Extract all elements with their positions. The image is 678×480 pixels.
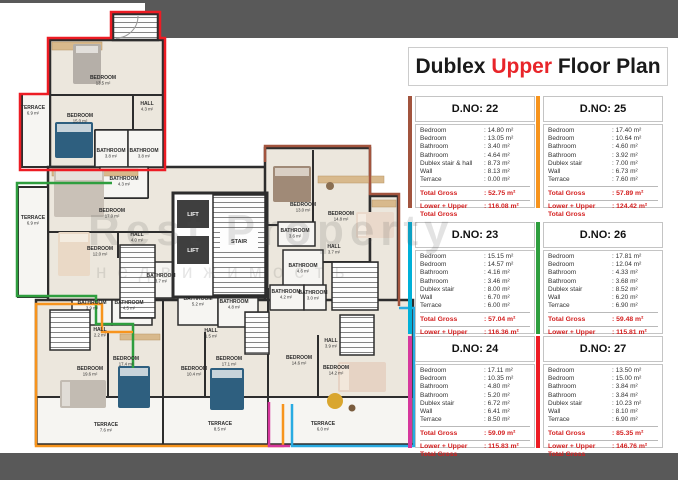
card-row: Bathroom: 4.64 m² <box>420 152 530 160</box>
room-type-label: Bedroom <box>548 375 612 383</box>
room-area: 4.3 m² <box>141 107 154 112</box>
room-area: 4.8 m² <box>228 305 241 310</box>
room-area-value: : 6.90 m² <box>612 416 658 424</box>
room-area-value: : 12.04 m² <box>612 261 658 269</box>
room-type-label: Bedroom <box>548 135 612 143</box>
card-row: Bathroom: 3.92 m² <box>548 152 658 160</box>
card-header: D.NO: 23 <box>415 222 535 248</box>
total-gross-value: : 59.48 m² <box>612 316 658 324</box>
room-area-value: : 6.70 m² <box>484 294 530 302</box>
lower-upper-label: Lower + Upper Total Gross <box>420 443 484 459</box>
total-gross-label: Total Gross <box>420 316 484 324</box>
room-type-label: Terrace <box>548 176 612 184</box>
card-row: Bedroom: 17.81 m² <box>548 253 658 261</box>
room-area-value: : 4.60 m² <box>612 143 658 151</box>
room-area: 19.6 m² <box>83 372 98 377</box>
total-gross-row: Total Gross: 59.48 m² <box>548 312 658 324</box>
room-area-value: : 4.16 m² <box>484 269 530 277</box>
room-area-value: : 6.41 m² <box>484 408 530 416</box>
room-area: 4.2 m² <box>280 295 293 300</box>
room-area-value: : 5.20 m² <box>484 392 530 400</box>
card-accent-bar <box>408 96 412 208</box>
card-row: Bedroom: 14.57 m² <box>420 261 530 269</box>
room-area: 6.0 m² <box>317 427 330 432</box>
card-row: Dublex stair: 8.52 m² <box>548 286 658 294</box>
room-type-label: Dublex stair <box>420 286 484 294</box>
room-area-value: : 6.20 m² <box>612 294 658 302</box>
room-area-value: : 3.46 m² <box>484 278 530 286</box>
room-type-label: Wall <box>420 168 484 176</box>
room-type-label: Dublex stair <box>548 160 612 168</box>
room-type-label: Bedroom <box>420 367 484 375</box>
room-type-label: Bedroom <box>548 367 612 375</box>
room-area: 15.0 m² <box>73 119 88 124</box>
room-type-label: Bedroom <box>548 261 612 269</box>
total-gross-value: : 85.35 m² <box>612 430 658 438</box>
card-row: Bathroom: 3.84 m² <box>548 392 658 400</box>
card-header: D.NO: 24 <box>415 336 535 362</box>
room-type-label: Bedroom <box>548 253 612 261</box>
card-row: Dublex stair & hall: 8.73 m² <box>420 160 530 168</box>
room-area: 13.5 m² <box>96 81 111 86</box>
room-area-value: : 7.60 m² <box>612 176 658 184</box>
card-body: Bedroom: 14.80 m²Bedroom: 13.05 m²Bathro… <box>415 124 535 208</box>
room-type-label: Bathroom <box>420 383 484 391</box>
room-area-value: : 17.40 m² <box>612 127 658 135</box>
card-row: Bedroom: 17.11 m² <box>420 367 530 375</box>
svg-text:HALL3.7 m²: HALL3.7 m² <box>327 244 340 255</box>
svg-text:HALL1.5 m²: HALL1.5 m² <box>204 328 217 339</box>
room-area: 3.8 m² <box>138 154 151 159</box>
unit-card-26: D.NO: 26 Bedroom: 17.81 m²Bedroom: 12.04… <box>536 222 663 334</box>
room-type-label: Bathroom <box>420 269 484 277</box>
total-gross-label: Total Gross <box>420 430 484 438</box>
room-type-label: Bathroom <box>548 278 612 286</box>
room-area-value: : 14.80 m² <box>484 127 530 135</box>
card-row: Wall: 6.73 m² <box>548 168 658 176</box>
lower-upper-value: : 146.76 m² <box>612 443 658 459</box>
card-row: Dublex stair: 6.72 m² <box>420 400 530 408</box>
room-area: 1.5 m² <box>205 334 218 339</box>
room-area: 17.4 m² <box>119 362 134 367</box>
card-body: Bedroom: 17.81 m²Bedroom: 12.04 m²Bathro… <box>543 250 663 334</box>
room-area-value: : 8.50 m² <box>484 416 530 424</box>
svg-text:HALL4.0 m²: HALL4.0 m² <box>130 232 143 243</box>
card-row: Bedroom: 13.50 m² <box>548 367 658 375</box>
room-area-value: : 13.50 m² <box>612 367 658 375</box>
card-row: Bathroom: 4.60 m² <box>548 143 658 151</box>
card-accent-bar <box>536 96 540 208</box>
room-type-label: Wall <box>548 168 612 176</box>
room-area-value: : 10.23 m² <box>612 400 658 408</box>
room-area: 3.7 m² <box>155 279 168 284</box>
room-area-value: : 10.35 m² <box>484 375 530 383</box>
card-row: Bathroom: 4.80 m² <box>420 383 530 391</box>
card-row: Terrace: 6.00 m² <box>420 302 530 310</box>
card-body: Bedroom: 13.50 m²Bedroom: 15.00 m²Bathro… <box>543 364 663 448</box>
room-area-value: : 17.81 m² <box>612 253 658 261</box>
room-area: 14.8 m² <box>334 217 349 222</box>
total-gross-label: Total Gross <box>548 316 612 324</box>
total-gross-row: Total Gross: 52.75 m² <box>420 186 530 198</box>
room-type-label: Wall <box>548 294 612 302</box>
card-row: Bedroom: 17.40 m² <box>548 127 658 135</box>
room-area-value: : 6.00 m² <box>484 302 530 310</box>
room-area: 3.9 m² <box>86 306 99 311</box>
room-area-value: : 8.00 m² <box>484 286 530 294</box>
lower-upper-label: Lower + Upper Total Gross <box>548 443 612 459</box>
card-row: Bedroom: 15.00 m² <box>548 375 658 383</box>
card-row: Bedroom: 13.05 m² <box>420 135 530 143</box>
card-row: Bedroom: 12.04 m² <box>548 261 658 269</box>
room-area-value: : 8.52 m² <box>612 286 658 294</box>
room-area-value: : 4.64 m² <box>484 152 530 160</box>
room-type-label: Bathroom <box>548 269 612 277</box>
room-area: 10.4 m² <box>187 372 202 377</box>
room-type-label: Bedroom <box>420 135 484 143</box>
room-area-value: : 3.68 m² <box>612 278 658 286</box>
total-gross-label: Total Gross <box>548 430 612 438</box>
room-area: 3.0 m² <box>307 296 320 301</box>
room-area-value: : 15.00 m² <box>612 375 658 383</box>
total-gross-value: : 57.04 m² <box>484 316 530 324</box>
lower-upper-row: Lower + Upper Total Gross: 115.83 m² <box>420 440 530 460</box>
svg-text:HALL2.2 m²: HALL2.2 m² <box>93 327 106 338</box>
total-gross-value: : 52.75 m² <box>484 190 530 198</box>
floor-plan-svg: LIFT LIFT STAIR <box>0 0 420 460</box>
room-type-label: Bedroom <box>420 261 484 269</box>
room-area-value: : 8.73 m² <box>484 160 530 168</box>
room-area: 14.2 m² <box>329 371 344 376</box>
lower-upper-value: : 116.08 m² <box>484 203 530 219</box>
unit-card-27: D.NO: 27 Bedroom: 13.50 m²Bedroom: 15.00… <box>536 336 663 448</box>
unit-card-22: D.NO: 22 Bedroom: 14.80 m²Bedroom: 13.05… <box>408 96 535 208</box>
card-row: Wall: 8.13 m² <box>420 168 530 176</box>
room-type-label: Bathroom <box>420 143 484 151</box>
lower-upper-value: : 124.42 m² <box>612 203 658 219</box>
title-part2: Floor Plan <box>552 55 661 79</box>
lower-upper-row: Lower + Upper Total Gross: 146.76 m² <box>548 440 658 460</box>
title-highlight: Upper <box>491 55 552 79</box>
card-header: D.NO: 27 <box>543 336 663 362</box>
room-area-value: : 6.73 m² <box>612 168 658 176</box>
room-area-value: : 15.15 m² <box>484 253 530 261</box>
room-area-value: : 17.11 m² <box>484 367 530 375</box>
total-gross-row: Total Gross: 57.89 m² <box>548 186 658 198</box>
room-area-value: : 13.05 m² <box>484 135 530 143</box>
page: LIFT LIFT STAIR <box>0 0 678 480</box>
room-area: 14.6 m² <box>292 361 307 366</box>
room-area-value: : 6.72 m² <box>484 400 530 408</box>
room-area-value: : 6.90 m² <box>612 302 658 310</box>
room-area-value: : 14.57 m² <box>484 261 530 269</box>
lower-upper-value: : 115.83 m² <box>484 443 530 459</box>
card-row: Dublex stair: 10.23 m² <box>548 400 658 408</box>
card-accent-bar <box>536 222 540 334</box>
room-type-label: Dublex stair & hall <box>420 160 484 168</box>
stair-label: STAIR <box>231 239 247 245</box>
room-type-label: Bathroom <box>420 392 484 400</box>
room-area: 6.9 m² <box>27 221 40 226</box>
lower-upper-label: Lower + Upper Total Gross <box>548 203 612 219</box>
lower-upper-row: Lower + Upper Total Gross: 124.42 m² <box>548 200 658 220</box>
room-area: 4.5 m² <box>123 306 136 311</box>
room-type-label: Bedroom <box>420 375 484 383</box>
room-area-value: : 10.64 m² <box>612 135 658 143</box>
unit-card-24: D.NO: 24 Bedroom: 17.11 m²Bedroom: 10.35… <box>408 336 535 448</box>
total-gross-row: Total Gross: 85.35 m² <box>548 426 658 438</box>
room-area-value: : 3.84 m² <box>612 392 658 400</box>
card-row: Wall: 6.20 m² <box>548 294 658 302</box>
card-row: Bedroom: 10.35 m² <box>420 375 530 383</box>
room-area-value: : 3.92 m² <box>612 152 658 160</box>
card-body: Bedroom: 17.40 m²Bedroom: 10.64 m²Bathro… <box>543 124 663 208</box>
lift-label: LIFT <box>187 212 199 218</box>
room-area: 4.3 m² <box>118 182 131 187</box>
room-type-label: Bedroom <box>548 127 612 135</box>
room-area: 12.0 m² <box>93 252 108 257</box>
room-type-label: Bedroom <box>420 127 484 135</box>
total-gross-row: Total Gross: 57.04 m² <box>420 312 530 324</box>
room-area: 17.0 m² <box>105 214 120 219</box>
room-type-label: Bedroom <box>420 253 484 261</box>
card-row: Bathroom: 4.33 m² <box>548 269 658 277</box>
card-row: Dublex stair: 8.00 m² <box>420 286 530 294</box>
room-type-label: Terrace <box>420 302 484 310</box>
room-area-value: : 0.00 m² <box>484 176 530 184</box>
room-type-label: Wall <box>420 294 484 302</box>
card-body: Bedroom: 17.11 m²Bedroom: 10.35 m²Bathro… <box>415 364 535 448</box>
room-type-label: Dublex stair <box>420 400 484 408</box>
card-accent-bar <box>408 336 412 448</box>
title-part1: Dublex <box>415 55 491 79</box>
room-type-label: Bathroom <box>420 152 484 160</box>
room-area: 6.9 m² <box>27 111 40 116</box>
total-gross-row: Total Gross: 59.09 m² <box>420 426 530 438</box>
unit-card-23: D.NO: 23 Bedroom: 15.15 m²Bedroom: 14.57… <box>408 222 535 334</box>
room-type-label: Wall <box>420 408 484 416</box>
room-type-label: Terrace <box>548 416 612 424</box>
total-gross-value: : 57.89 m² <box>612 190 658 198</box>
room-area: 7.6 m² <box>100 428 113 433</box>
room-area-value: : 4.33 m² <box>612 269 658 277</box>
card-header: D.NO: 26 <box>543 222 663 248</box>
lower-upper-label: Lower + Upper Total Gross <box>420 203 484 219</box>
unit-card-25: D.NO: 25 Bedroom: 17.40 m²Bedroom: 10.64… <box>536 96 663 208</box>
room-type-label: Bathroom <box>548 392 612 400</box>
room-type-label: Bathroom <box>548 152 612 160</box>
room-type-label: Bathroom <box>420 278 484 286</box>
room-area: 2.2 m² <box>94 333 107 338</box>
card-accent-bar <box>536 336 540 448</box>
lower-upper-row: Lower + Upper Total Gross: 116.08 m² <box>420 200 530 220</box>
card-row: Bathroom: 3.46 m² <box>420 278 530 286</box>
card-row: Terrace: 0.00 m² <box>420 176 530 184</box>
room-area: 3.9 m² <box>325 344 338 349</box>
room-type-label: Wall <box>548 408 612 416</box>
card-row: Bathroom: 3.40 m² <box>420 143 530 151</box>
room-area: 4.6 m² <box>297 269 310 274</box>
card-row: Bedroom: 10.64 m² <box>548 135 658 143</box>
svg-text:HALL4.3 m²: HALL4.3 m² <box>140 101 153 112</box>
card-row: Wall: 6.41 m² <box>420 408 530 416</box>
card-row: Bedroom: 15.15 m² <box>420 253 530 261</box>
card-row: Terrace: 6.90 m² <box>548 416 658 424</box>
card-header: D.NO: 22 <box>415 96 535 122</box>
room-type-label: Terrace <box>548 302 612 310</box>
card-row: Terrace: 6.90 m² <box>548 302 658 310</box>
card-header: D.NO: 25 <box>543 96 663 122</box>
room-area: 4.0 m² <box>131 238 144 243</box>
room-area-value: : 8.13 m² <box>484 168 530 176</box>
svg-text:HALL3.9 m²: HALL3.9 m² <box>324 338 337 349</box>
room-area-value: : 3.40 m² <box>484 143 530 151</box>
card-row: Bathroom: 3.84 m² <box>548 383 658 391</box>
card-row: Wall: 8.10 m² <box>548 408 658 416</box>
room-type-label: Bathroom <box>548 383 612 391</box>
room-area: 17.1 m² <box>222 362 237 367</box>
card-row: Bedroom: 14.80 m² <box>420 127 530 135</box>
room-area: 13.0 m² <box>296 208 311 213</box>
card-row: Wall: 6.70 m² <box>420 294 530 302</box>
room-type-label: Bathroom <box>548 143 612 151</box>
card-row: Bathroom: 5.20 m² <box>420 392 530 400</box>
card-accent-bar <box>408 222 412 334</box>
room-area-value: : 8.10 m² <box>612 408 658 416</box>
total-gross-label: Total Gross <box>420 190 484 198</box>
card-row: Terrace: 7.60 m² <box>548 176 658 184</box>
room-area: 3.8 m² <box>105 154 118 159</box>
room-type-label: Dublex stair <box>548 286 612 294</box>
room-area: 3.7 m² <box>328 250 341 255</box>
room-area-value: : 3.84 m² <box>612 383 658 391</box>
room-area: 3.6 m² <box>289 234 302 239</box>
room-area-value: : 4.80 m² <box>484 383 530 391</box>
room-type-label: Terrace <box>420 416 484 424</box>
room-area: 5.2 m² <box>192 302 205 307</box>
page-title: Dublex Upper Floor Plan <box>408 47 668 86</box>
card-row: Dublex stair: 7.00 m² <box>548 160 658 168</box>
card-body: Bedroom: 15.15 m²Bedroom: 14.57 m²Bathro… <box>415 250 535 334</box>
room-type-label: Dublex stair <box>548 400 612 408</box>
lift-label: LIFT <box>187 248 199 254</box>
plan-core: LIFT LIFT STAIR <box>173 193 267 297</box>
room-area: 8.5 m² <box>214 427 227 432</box>
total-gross-label: Total Gross <box>548 190 612 198</box>
card-row: Terrace: 8.50 m² <box>420 416 530 424</box>
total-gross-value: : 59.09 m² <box>484 430 530 438</box>
card-row: Bathroom: 3.68 m² <box>548 278 658 286</box>
room-type-label: Terrace <box>420 176 484 184</box>
card-row: Bathroom: 4.16 m² <box>420 269 530 277</box>
room-area-value: : 7.00 m² <box>612 160 658 168</box>
